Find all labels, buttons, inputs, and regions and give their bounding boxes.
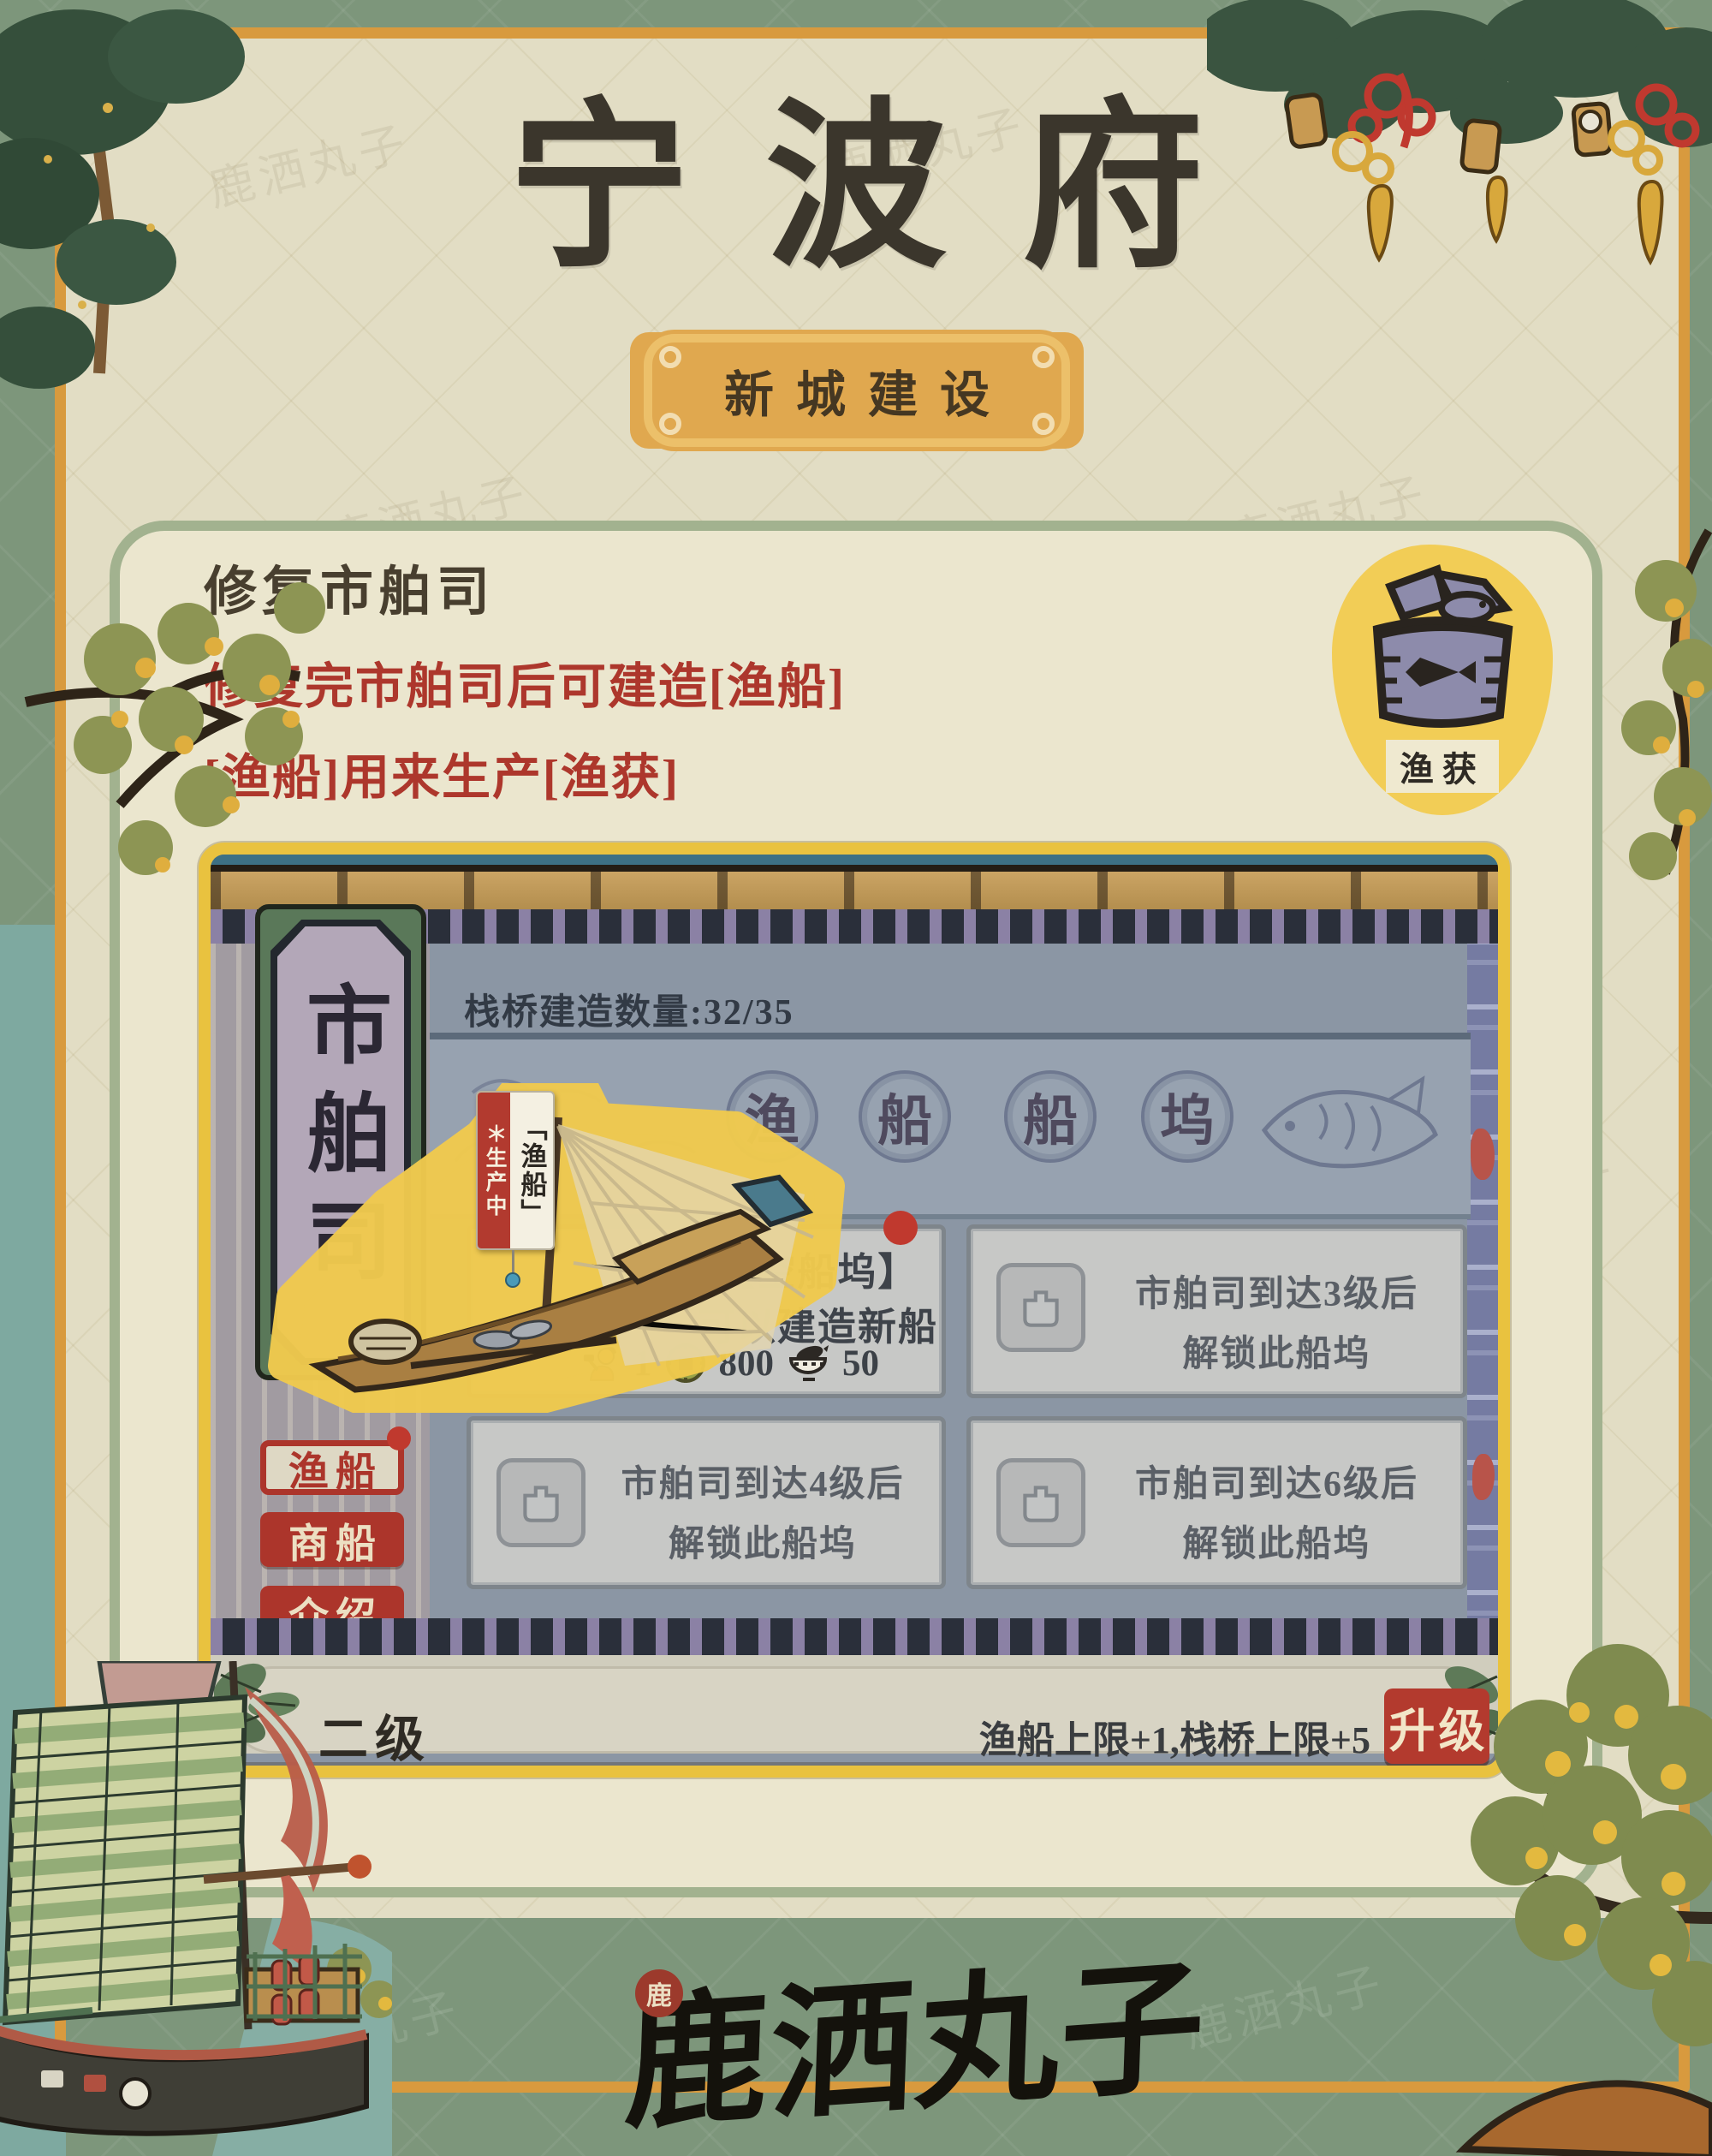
locked-text-line1: 市舶司到达3级后 bbox=[1031, 1265, 1510, 1317]
locked-text-line2: 解锁此船坞 bbox=[1031, 1325, 1510, 1377]
fish-catch-badge-label: 渔获 bbox=[1386, 740, 1499, 793]
artist-seal: 鹿 bbox=[635, 1969, 683, 2017]
subtitle-banner: 新城建设 bbox=[644, 334, 1070, 447]
tag-anchor-dot bbox=[505, 1272, 520, 1288]
locked-text-line1: 市舶司到达4级后 bbox=[527, 1455, 998, 1507]
tab-notification-dot bbox=[387, 1426, 411, 1450]
boat-status-label: ＊生产中 bbox=[478, 1093, 510, 1248]
locked-text-line1: 市舶司到达6级后 bbox=[1031, 1455, 1510, 1507]
flower-branch-left bbox=[17, 462, 428, 942]
tab-merchant-ship[interactable]: 商船 bbox=[260, 1512, 404, 1567]
poster-page: 鹿洒丸子 鹿洒丸子 鹿洒丸子 鹿洒丸子 鹿洒丸子 鹿洒丸子 鹿洒丸子 鹿洒丸子 … bbox=[0, 0, 1712, 2156]
garland-topright bbox=[1207, 0, 1712, 301]
fish-basket-icon bbox=[1356, 557, 1527, 745]
pine-tree-topleft bbox=[0, 5, 339, 485]
dock-title-char: 坞 bbox=[1141, 1070, 1233, 1163]
dock-slot-locked-4: 市舶司到达4级后 解锁此船坞 bbox=[467, 1416, 946, 1589]
pier-counter: 栈桥建造数量:32/35 bbox=[464, 983, 794, 1035]
tab-label: 商船 bbox=[282, 1510, 383, 1569]
subtitle-banner-label: 新城建设 bbox=[644, 334, 1070, 447]
dock-title-char: 船 bbox=[1004, 1070, 1097, 1163]
notification-dot bbox=[883, 1211, 918, 1245]
artist-signature: 鹿洒丸子 bbox=[621, 1913, 1141, 2156]
tag-connector-line bbox=[512, 1250, 514, 1272]
flower-branch-right bbox=[1589, 514, 1712, 890]
tree-bottomright bbox=[1284, 1558, 1712, 2156]
tab-fishing-boat[interactable]: 渔船 bbox=[260, 1440, 404, 1495]
junk-ship bbox=[0, 1661, 392, 2156]
boat-status-tag: ＊生产中 「渔船」 bbox=[476, 1091, 555, 1250]
boat-name-label: 「渔船」 bbox=[510, 1093, 553, 1248]
locked-text-line2: 解锁此船坞 bbox=[527, 1515, 998, 1567]
fishing-boat[interactable] bbox=[257, 1083, 873, 1413]
tab-label: 渔船 bbox=[282, 1438, 383, 1498]
fish-relief-art bbox=[1251, 1053, 1448, 1199]
dock-slot-locked-3: 市舶司到达3级后 解锁此船坞 bbox=[966, 1224, 1467, 1398]
